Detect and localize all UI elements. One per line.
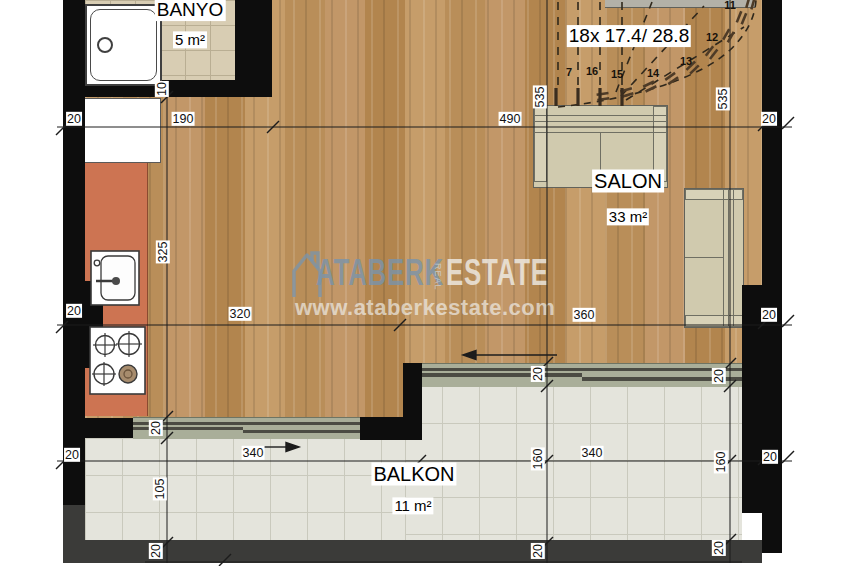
step-number: 11 <box>724 0 736 11</box>
dim-label: 20 <box>762 450 778 464</box>
dim-label: 360 <box>573 308 596 322</box>
step-number: 13 <box>680 55 692 67</box>
dim-label: 10 <box>155 81 169 97</box>
balkon-label: BALKON <box>371 463 456 486</box>
kitchen-stove <box>89 326 146 395</box>
wall-right-bump <box>742 285 762 513</box>
salon-label: SALON <box>592 170 664 193</box>
dim-label: 160 <box>714 451 728 474</box>
wall-right <box>762 0 782 553</box>
wall-left <box>63 0 85 505</box>
sofa-right-wall <box>684 188 744 328</box>
wall-bottom-outer <box>63 540 762 563</box>
step-number: 16 <box>586 65 598 77</box>
salon-area: 33 m² <box>607 208 649 225</box>
dim-label: 160 <box>531 448 545 471</box>
dim-label: 535 <box>716 88 730 111</box>
dim-label: 190 <box>172 112 195 126</box>
wall-balkon-stub <box>85 418 133 438</box>
step-number: 7 <box>566 66 572 78</box>
balkon-area: 11 m² <box>392 497 433 514</box>
wall-balkon-jamb-foot <box>360 417 403 440</box>
step-number: 15 <box>611 68 623 80</box>
dim-label: 20 <box>531 543 545 559</box>
banyo-label: BANYO <box>155 0 226 21</box>
dim-label: 20 <box>64 448 80 462</box>
sliding-door-sill-salon <box>422 363 742 387</box>
dim-label: 340 <box>242 446 265 460</box>
wall-balkon-jamb <box>403 363 422 440</box>
floor-plan: ATABERK REAL ESTATE www.ataberkestate.co… <box>0 0 850 566</box>
sliding-door-sill-kitchen <box>133 417 363 439</box>
dim-label: 20 <box>531 366 545 382</box>
kitchen-sink <box>90 250 140 306</box>
stairs-label: 18x 17.4/ 28.8 <box>567 25 691 47</box>
dim-label: 490 <box>499 112 522 126</box>
dim-label: 20 <box>761 112 777 126</box>
step-number: 12 <box>706 31 718 43</box>
banyo-area: 5 m² <box>173 31 207 48</box>
dim-label: 20 <box>66 304 82 318</box>
dim-label: 105 <box>153 478 167 501</box>
dim-label: 535 <box>533 86 547 109</box>
shower-drain-icon <box>97 37 113 53</box>
dim-label: 20 <box>66 112 82 126</box>
dim-label: 325 <box>156 241 170 264</box>
wall-banyo-right <box>235 0 272 97</box>
dim-label: 20 <box>761 308 777 322</box>
dim-label: 320 <box>229 307 252 321</box>
step-number: 14 <box>647 67 659 79</box>
dim-label: 20 <box>149 543 163 559</box>
shower-tray <box>85 4 162 86</box>
kitchen-counter-white <box>84 98 161 163</box>
dim-label: 20 <box>712 368 726 384</box>
dim-label: 20 <box>712 540 726 556</box>
dim-label: 20 <box>149 420 163 436</box>
dim-label: 340 <box>581 446 604 460</box>
